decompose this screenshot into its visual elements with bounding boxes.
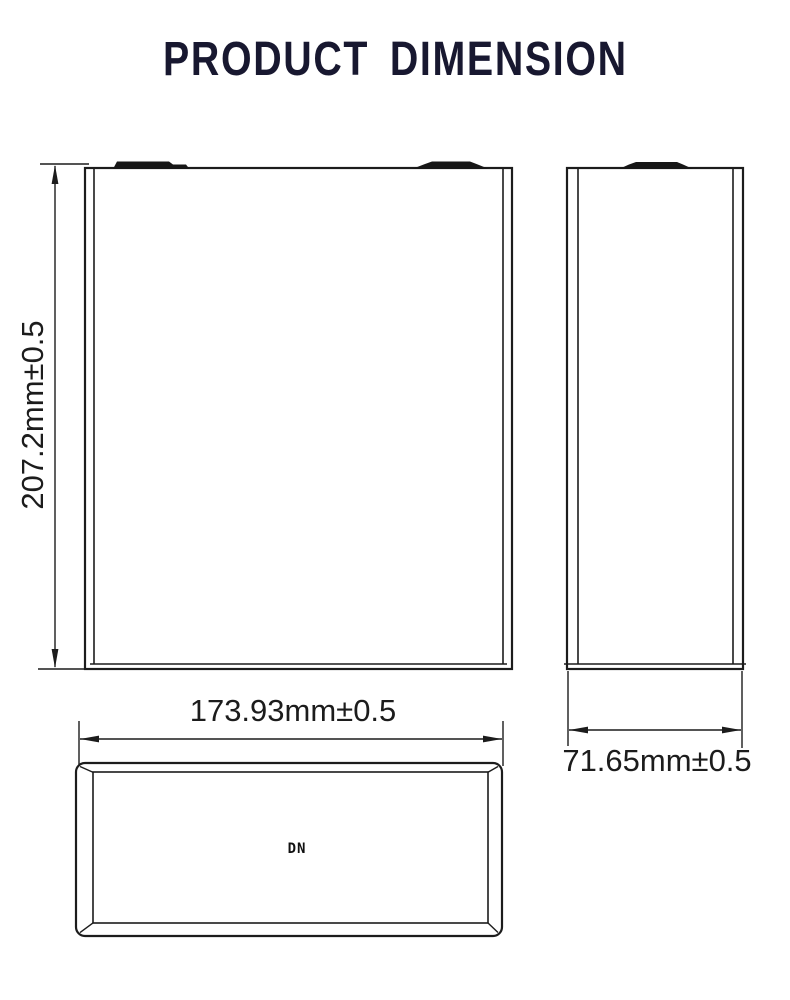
positive-terminal	[412, 162, 489, 170]
side-view-outline	[567, 168, 743, 669]
width-dimension-label: 173.93mm±0.5	[190, 693, 397, 729]
front-view-outline	[85, 168, 512, 669]
top-view-chamfer-top-left	[80, 767, 94, 773]
depth-arrow-right	[722, 727, 741, 734]
height-arrow-down	[52, 649, 59, 668]
vent-mark-label: DN	[288, 841, 307, 857]
depth-dimension-label: 71.65mm±0.5	[562, 743, 751, 779]
side-view	[564, 162, 746, 669]
depth-dimension	[568, 671, 742, 748]
width-arrow-right	[483, 736, 502, 743]
height-dimension-label: 207.2mm±0.5	[15, 320, 51, 509]
height-arrow-up	[52, 165, 59, 184]
front-view	[85, 162, 512, 670]
negative-terminal	[113, 162, 190, 170]
top-view-chamfer-bottom-right	[488, 923, 499, 933]
product-dimension-drawing: PRODUCT DIMENSION	[0, 0, 790, 1000]
side-terminal	[619, 162, 693, 169]
top-view-chamfer-bottom-left	[80, 923, 94, 933]
depth-arrow-left	[569, 727, 588, 734]
width-arrow-left	[80, 736, 99, 743]
drawing-svg	[0, 0, 790, 1000]
top-view-chamfer-top-right	[488, 767, 499, 773]
